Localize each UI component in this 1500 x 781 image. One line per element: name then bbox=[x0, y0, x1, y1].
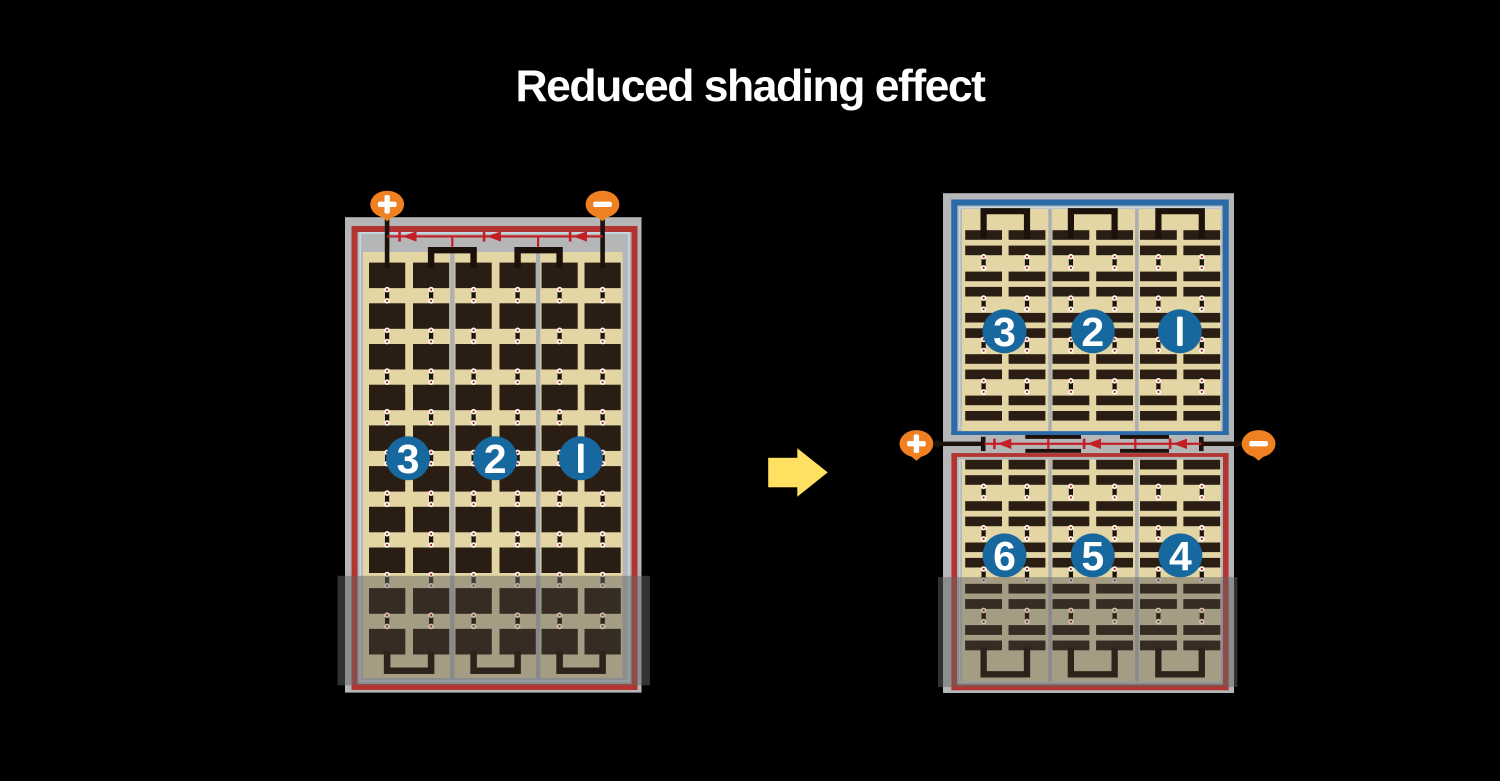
svg-text:2: 2 bbox=[1081, 309, 1104, 355]
svg-text:5: 5 bbox=[1081, 533, 1104, 579]
svg-text:4: 4 bbox=[1169, 533, 1192, 579]
svg-text:3: 3 bbox=[993, 309, 1016, 355]
svg-text:3: 3 bbox=[397, 436, 420, 482]
svg-text:6: 6 bbox=[993, 533, 1016, 579]
svg-text:2: 2 bbox=[484, 436, 507, 482]
